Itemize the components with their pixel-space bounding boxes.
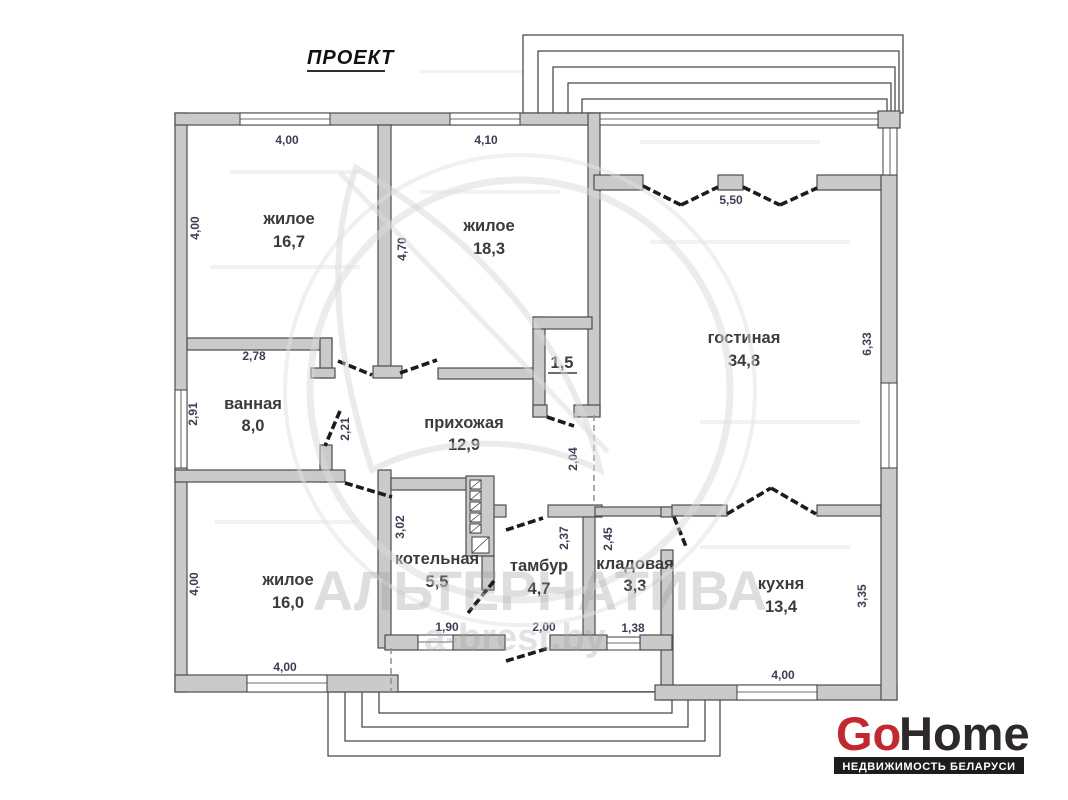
wall-segment bbox=[548, 505, 602, 517]
dimension: 3,02 bbox=[393, 515, 407, 539]
wall-segment bbox=[878, 111, 900, 128]
wall-segment bbox=[311, 368, 335, 378]
dimension: 5,50 bbox=[719, 193, 743, 207]
terrace-roof-steps bbox=[523, 35, 903, 113]
wall-segment bbox=[588, 113, 600, 415]
wall-segment bbox=[391, 478, 468, 490]
window bbox=[450, 113, 520, 125]
window bbox=[247, 675, 327, 692]
wall-segment bbox=[661, 507, 673, 517]
wall-segment bbox=[640, 635, 672, 650]
window bbox=[240, 113, 330, 125]
door-wc bbox=[547, 417, 574, 426]
door-room2 bbox=[400, 360, 437, 373]
window bbox=[607, 637, 640, 650]
wall-segment bbox=[175, 113, 600, 125]
wall-segment bbox=[817, 505, 881, 516]
dimension: 2,37 bbox=[557, 526, 571, 550]
wall-segment bbox=[533, 405, 547, 417]
window bbox=[175, 390, 187, 468]
window bbox=[737, 685, 817, 700]
room-label: жилое bbox=[462, 217, 514, 235]
dimension: 2,91 bbox=[186, 402, 200, 426]
logo-home: Home bbox=[899, 707, 1030, 760]
floorplan-drawing: жилое 16,7 жилое 18,3 гостиная 34,8 ванн… bbox=[0, 0, 1068, 800]
plan-title: ПРОЕКТ bbox=[307, 47, 395, 71]
dimension: 3,35 bbox=[855, 584, 869, 608]
dimension: 4,00 bbox=[273, 660, 297, 674]
gohome-logo: Go Home НЕДВИЖИМОСТЬ БЕЛАРУСИ bbox=[834, 707, 1030, 774]
dimension: 4,00 bbox=[771, 668, 795, 682]
terrace-door-leaf bbox=[780, 188, 817, 205]
logo-go: Go bbox=[836, 707, 901, 760]
room-label: жилое bbox=[261, 571, 313, 589]
floorplan-page: жилое 16,7 жилое 18,3 гостиная 34,8 ванн… bbox=[0, 0, 1068, 800]
room-area: 8,0 bbox=[242, 417, 265, 435]
wall-segment bbox=[533, 317, 592, 329]
watermark-site: a-brest.by bbox=[424, 617, 606, 659]
dimension: 2,45 bbox=[601, 527, 615, 551]
wall-segment bbox=[438, 368, 538, 379]
dimension: 4,00 bbox=[275, 133, 299, 147]
dimension: 1,38 bbox=[621, 621, 645, 635]
dimension: 2,21 bbox=[338, 417, 352, 441]
porch-steps bbox=[328, 692, 720, 756]
dimension: 4,00 bbox=[188, 216, 202, 240]
wall-segment bbox=[175, 470, 345, 482]
room-label: жилое bbox=[262, 210, 314, 228]
wall-segment bbox=[373, 366, 402, 378]
watermark-circle bbox=[285, 155, 755, 625]
terrace-railing bbox=[600, 113, 878, 125]
logo-tagline: НЕДВИЖИМОСТЬ БЕЛАРУСИ bbox=[842, 761, 1015, 773]
terrace-door-leaf bbox=[681, 187, 718, 205]
watermark-circle bbox=[310, 180, 730, 600]
dimension: 6,33 bbox=[860, 332, 874, 356]
terrace-railing bbox=[883, 128, 897, 175]
window bbox=[881, 383, 897, 468]
room-label: ванная bbox=[224, 395, 282, 413]
dimension: 2,78 bbox=[242, 349, 266, 363]
room-label: прихожая bbox=[424, 414, 504, 432]
wall-segment bbox=[385, 635, 418, 650]
room-area: 16,0 bbox=[272, 594, 304, 612]
wall-segment bbox=[378, 125, 391, 368]
room-area: 13,4 bbox=[765, 598, 798, 616]
dimension: 4,10 bbox=[474, 133, 498, 147]
kitchen-door-leaf bbox=[771, 488, 816, 514]
terrace-door-leaf bbox=[743, 187, 780, 205]
dimension: 4,00 bbox=[187, 572, 201, 596]
page-title: ПРОЕКТ bbox=[307, 47, 395, 69]
door-vestibule bbox=[506, 518, 543, 530]
flue-block bbox=[466, 476, 494, 556]
watermark-brand: АЛЬТЕРНАТИВА bbox=[313, 559, 768, 622]
wall-segment bbox=[718, 175, 743, 190]
room-area: 16,7 bbox=[273, 233, 305, 251]
watermark: АЛЬТЕРНАТИВА a-brest.by bbox=[285, 155, 767, 659]
